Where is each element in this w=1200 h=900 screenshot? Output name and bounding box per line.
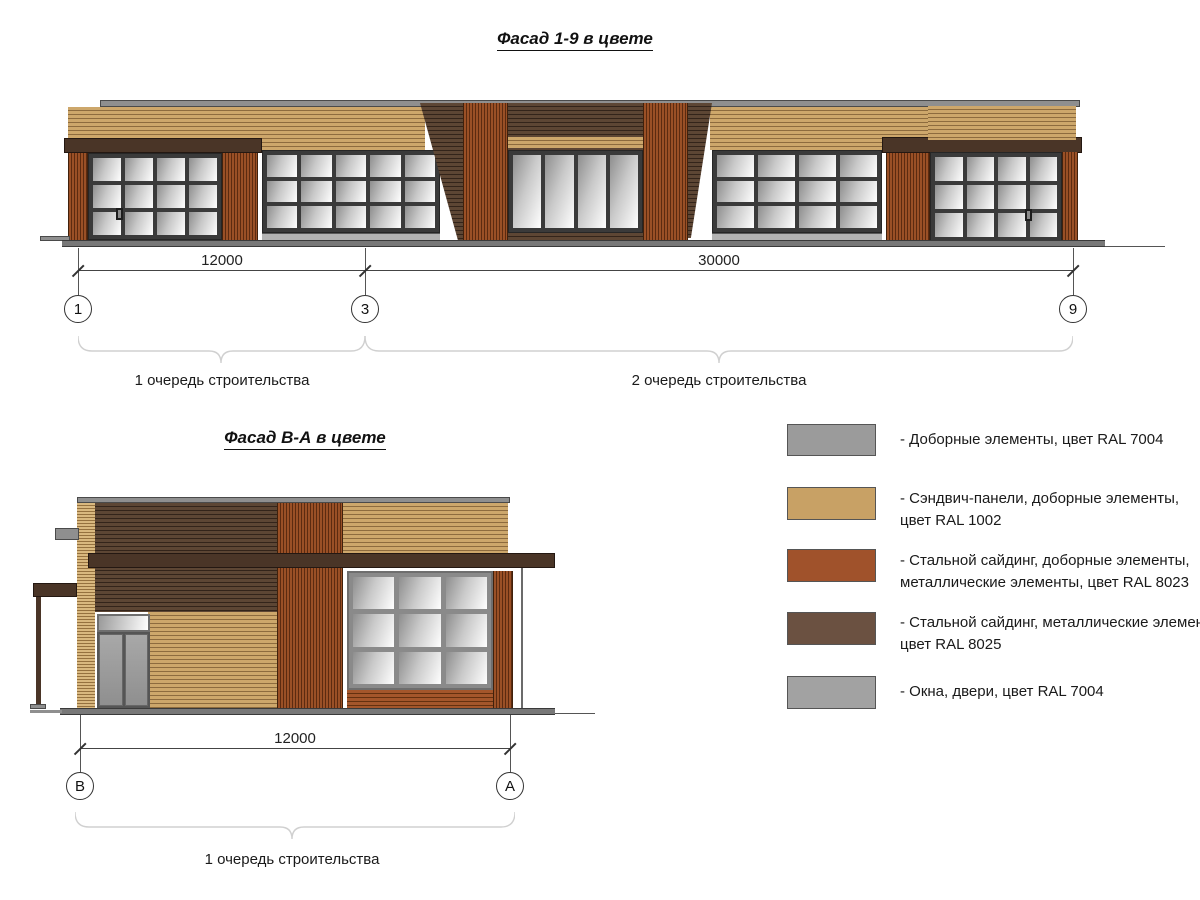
facade2-entrance-door: [97, 632, 150, 708]
facade1-phase-1-label: 1 очередь строительства: [72, 372, 372, 389]
legend-item-1: - Доборные элементы, цвет RAL 7004: [900, 429, 1163, 451]
window-pane: [301, 206, 331, 228]
facade1-left-door-handle: [116, 208, 123, 220]
window-pane: [399, 614, 440, 646]
legend-item-3-line1: - Стальной сайдинг, доборные элементы,: [900, 550, 1190, 572]
window-pane: [998, 185, 1026, 209]
window-pane: [399, 577, 440, 609]
facade1-window-c: [712, 150, 882, 233]
door-leaf: [99, 634, 123, 706]
window-pane: [967, 213, 995, 237]
window-pane: [405, 155, 435, 177]
facade-1-9-title-text: Фасад 1-9 в цвете: [497, 29, 653, 51]
window-pane: [353, 652, 394, 684]
facade2-ground-line-ext: [555, 713, 595, 714]
facade-b-a-title: Фасад В-А в цвете: [200, 428, 410, 448]
window-pane: [370, 206, 400, 228]
window-pane: [758, 155, 795, 177]
facade1-right-door-handle: [1025, 209, 1032, 221]
legend-item-4: - Стальной сайдинг, металлические элемен…: [900, 612, 1200, 656]
window-pane: [513, 155, 541, 228]
window-pane: [189, 212, 217, 235]
window-pane: [125, 185, 153, 208]
window-pane: [446, 652, 487, 684]
window-pane: [967, 185, 995, 209]
facade2-dim-12000: 12000: [245, 730, 345, 747]
phase-brace-facade2: [75, 812, 515, 844]
facade1-window-b: [262, 150, 440, 233]
facade1-phase-2-label: 2 очередь строительства: [569, 372, 869, 389]
facade1-slat-column-2: [222, 153, 258, 243]
legend-swatch-windows-ral-7004: [787, 676, 876, 709]
window-pane: [935, 213, 963, 237]
window-pane: [157, 185, 185, 208]
legend-swatch-ral-7004: [787, 424, 876, 456]
legend-item-5: - Окна, двери, цвет RAL 7004: [900, 681, 1104, 703]
window-pane: [840, 155, 877, 177]
window-pane: [717, 206, 754, 228]
facade2-red-siding-below-window: [347, 690, 493, 708]
facade2-ground-strip: [60, 708, 555, 715]
legend-item-4-line1: - Стальной сайдинг, металлические элемен: [900, 612, 1200, 634]
window-pane: [405, 181, 435, 203]
window-pane: [1030, 157, 1058, 181]
window-pane: [758, 181, 795, 203]
window-pane: [336, 155, 366, 177]
facade2-porch-foot: [30, 704, 46, 709]
facade1-window-left: [88, 153, 222, 240]
window-pane: [840, 181, 877, 203]
window-pane: [610, 155, 638, 228]
legend-item-4-line2: цвет RAL 8025: [900, 634, 1200, 656]
facade1-dimension-line: [78, 270, 1073, 271]
window-pane: [336, 181, 366, 203]
legend-swatch-ral-8023: [787, 549, 876, 582]
phase-1-brace: [75, 812, 515, 839]
window-pane: [717, 155, 754, 177]
axis-marker-b: В: [66, 772, 94, 800]
window-pane: [267, 206, 297, 228]
window-pane: [189, 185, 217, 208]
facade2-phase-1-label: 1 очередь строительства: [142, 851, 442, 868]
axis-marker-9: 9: [1059, 295, 1087, 323]
facade1-slat-column-6: [1062, 152, 1078, 242]
legend-item-2-line1: - Сэндвич-панели, доборные элементы,: [900, 488, 1179, 510]
facade-b-a-title-text: Фасад В-А в цвете: [224, 428, 385, 450]
window-pane: [717, 181, 754, 203]
facade1-slat-column-1: [68, 153, 88, 243]
facade1-window-right: [930, 152, 1062, 242]
facade1-dark-wedge-right: [688, 103, 712, 238]
legend-item-3: - Стальной сайдинг, доборные элементы, м…: [900, 550, 1190, 594]
window-pane: [446, 614, 487, 646]
facade1-dim-12000: 12000: [172, 252, 272, 269]
legend-item-2: - Сэндвич-панели, доборные элементы, цве…: [900, 488, 1179, 532]
phase-2-brace: [365, 336, 1073, 363]
facade1-center-base: [508, 233, 643, 240]
window-pane: [545, 155, 573, 228]
window-pane: [336, 206, 366, 228]
window-pane: [998, 213, 1026, 237]
window-pane: [840, 206, 877, 228]
window-pane: [370, 181, 400, 203]
facade2-porch-beam: [33, 583, 77, 597]
window-pane: [93, 185, 121, 208]
legend-item-3-line2: металлические элементы, цвет RAL 8023: [900, 572, 1190, 594]
facade1-slat-column-3: [463, 103, 508, 245]
window-pane: [578, 155, 606, 228]
facade2-porch-post: [36, 597, 41, 707]
window-pane: [189, 158, 217, 181]
legend-item-2-line2: цвет RAL 1002: [900, 510, 1179, 532]
window-pane: [799, 206, 836, 228]
facade1-window-center: [508, 150, 643, 233]
facade1-slat-column-4: [643, 103, 688, 245]
window-pane: [301, 155, 331, 177]
window-pane: [267, 181, 297, 203]
facade1-center-tan-strip: [508, 137, 643, 148]
window-pane: [935, 157, 963, 181]
facade2-door-transom: [97, 614, 150, 632]
window-pane: [935, 185, 963, 209]
window-pane: [157, 212, 185, 235]
window-pane: [301, 181, 331, 203]
window-pane: [399, 652, 440, 684]
axis-b-extension-line: [80, 715, 81, 772]
legend-item-1-line1: - Доборные элементы, цвет RAL 7004: [900, 429, 1163, 451]
door-leaf: [125, 634, 149, 706]
phase-braces-facade1: [78, 336, 1073, 368]
window-pane: [370, 155, 400, 177]
facade2-canopy-band: [88, 553, 555, 568]
drawing-canvas: Фасад 1-9 в цвете 12000 30000 1 3 9: [0, 0, 1200, 900]
facade1-slat-column-5: [886, 153, 930, 242]
facade2-dimension-line: [80, 748, 510, 749]
axis-a-extension-line: [510, 715, 511, 772]
window-pane: [967, 157, 995, 181]
window-pane: [799, 181, 836, 203]
window-pane: [157, 158, 185, 181]
facade1-dim-30000: 30000: [669, 252, 769, 269]
facade1-tan-panel-right: [928, 103, 1076, 140]
legend-item-5-line1: - Окна, двери, цвет RAL 7004: [900, 681, 1104, 703]
legend-swatch-ral-1002: [787, 487, 876, 520]
window-pane: [998, 157, 1026, 181]
phase-1-brace: [78, 336, 365, 363]
window-pane: [799, 155, 836, 177]
facade2-large-window: [347, 571, 493, 690]
window-pane: [353, 577, 394, 609]
window-pane: [446, 577, 487, 609]
window-pane: [125, 212, 153, 235]
window-pane: [93, 158, 121, 181]
axis-marker-3: 3: [351, 295, 379, 323]
facade2-canopy-post: [521, 568, 523, 710]
window-pane: [758, 206, 795, 228]
window-pane: [353, 614, 394, 646]
facade1-ground-strip: [62, 240, 1105, 247]
window-pane: [1030, 213, 1058, 237]
window-pane: [1030, 185, 1058, 209]
window-pane: [267, 155, 297, 177]
window-pane: [405, 206, 435, 228]
facade1-ground-line-ext: [1105, 246, 1165, 247]
axis-marker-1: 1: [64, 295, 92, 323]
facade1-left-fascia: [64, 138, 262, 153]
facade2-gray-bracket: [55, 528, 79, 540]
facade2-ground-stub: [30, 710, 62, 713]
facade-1-9-title: Фасад 1-9 в цвете: [470, 29, 680, 49]
facade2-middle-slat-column: [277, 503, 343, 708]
axis-marker-a: А: [496, 772, 524, 800]
legend-swatch-ral-8025: [787, 612, 876, 645]
facade2-left-tan-column: [77, 503, 95, 708]
facade2-tan-lower-block: [148, 612, 277, 708]
window-pane: [125, 158, 153, 181]
facade2-right-slat-column: [493, 571, 513, 708]
facade2-tan-top-right-block: [343, 503, 508, 553]
